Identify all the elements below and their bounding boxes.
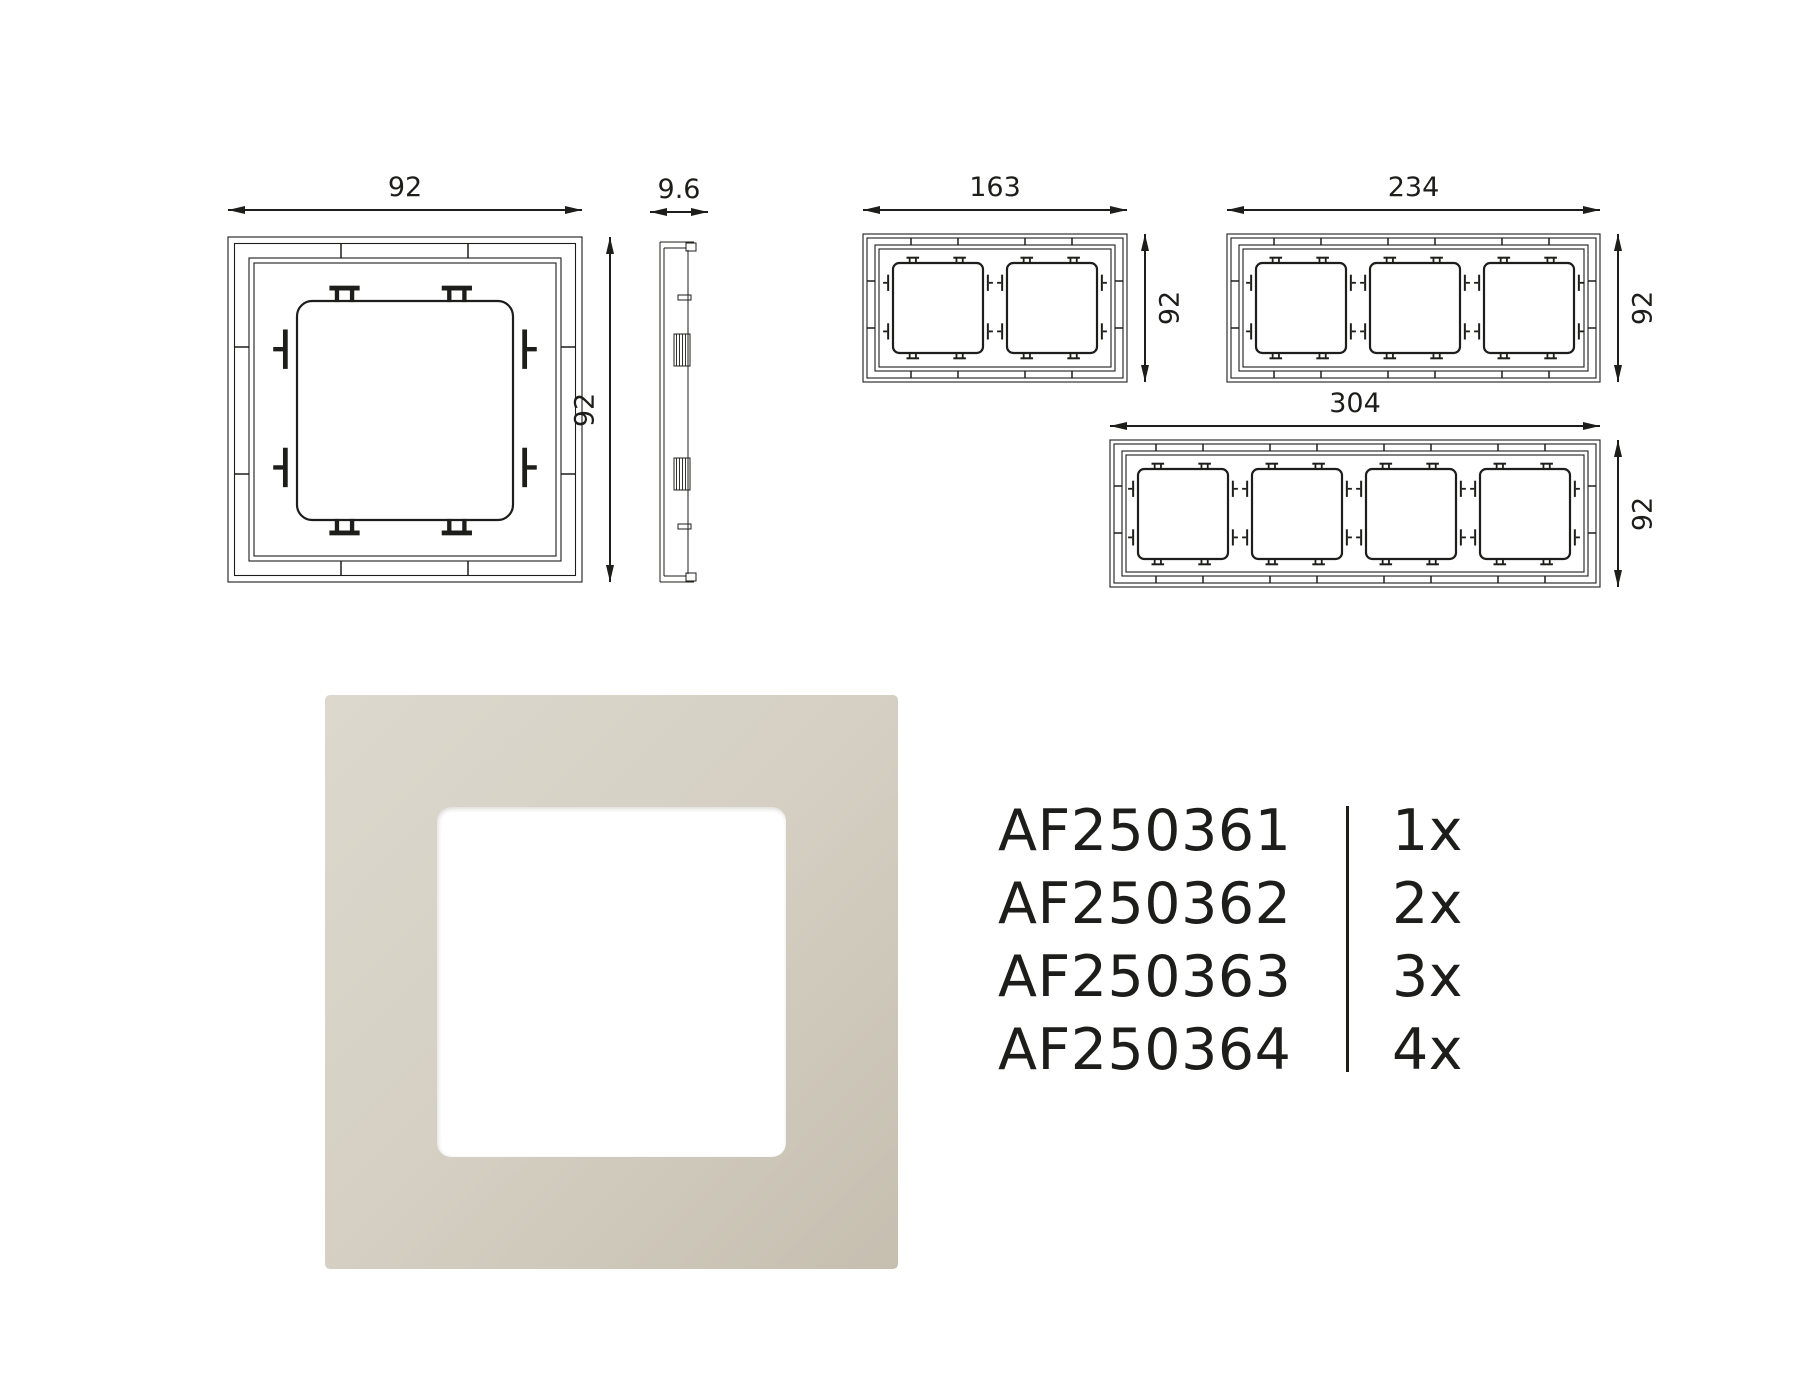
arrowhead-down-icon	[1141, 365, 1149, 382]
dim-line	[1227, 209, 1600, 210]
arrowhead-right-icon	[1583, 206, 1600, 214]
part-qty: 1x	[1392, 795, 1463, 868]
part-qty: 2x	[1392, 868, 1463, 941]
arrowhead-down-icon	[1614, 365, 1622, 382]
arrowhead-up-icon	[1614, 440, 1622, 457]
arrowhead-left-icon	[650, 208, 667, 216]
sku-column: AF250361 AF250362 AF250363 AF250364	[998, 795, 1291, 1087]
dim-label-height-3gang: 92	[1630, 291, 1657, 325]
dim-line	[228, 209, 582, 210]
frame-window-opening	[437, 807, 786, 1157]
arrowhead-right-icon	[565, 206, 582, 214]
arrowhead-left-icon	[1227, 206, 1244, 214]
part-list-divider	[1346, 806, 1349, 1072]
arrowhead-left-icon	[1110, 422, 1127, 430]
dim-line	[1617, 234, 1618, 382]
quantity-column: 1x 2x 3x 4x	[1392, 795, 1463, 1087]
dim-label-width-4gang: 304	[1329, 390, 1381, 417]
dim-line	[609, 237, 610, 582]
dim-label-width-1gang: 92	[388, 174, 422, 201]
front-view-1gang-drawing	[226, 235, 586, 589]
part-qty: 3x	[1392, 941, 1463, 1014]
dim-label-width-3gang: 234	[1388, 174, 1440, 201]
arrowhead-right-icon	[1110, 206, 1127, 214]
front-view-2gang-drawing	[861, 232, 1129, 384]
arrowhead-down-icon	[1614, 570, 1622, 587]
dim-line	[1110, 425, 1600, 426]
arrowhead-up-icon	[1614, 234, 1622, 251]
arrowhead-left-icon	[228, 206, 245, 214]
part-sku: AF250362	[998, 868, 1291, 941]
side-view-drawing	[654, 236, 702, 590]
dim-line	[1144, 234, 1145, 382]
arrowhead-down-icon	[606, 565, 614, 582]
dim-label-depth: 9.6	[658, 176, 701, 203]
arrowhead-right-icon	[691, 208, 708, 216]
part-sku: AF250361	[998, 795, 1291, 868]
arrowhead-up-icon	[606, 237, 614, 254]
dim-line	[863, 209, 1127, 210]
front-view-4gang-drawing	[1108, 438, 1604, 589]
front-view-3gang-drawing	[1225, 232, 1604, 384]
part-sku: AF250364	[998, 1014, 1291, 1087]
arrowhead-left-icon	[863, 206, 880, 214]
dim-line	[1617, 440, 1618, 587]
arrowhead-right-icon	[1583, 422, 1600, 430]
datasheet-page: 92 92	[0, 0, 1800, 1400]
dim-label-height-4gang: 92	[1630, 496, 1657, 530]
part-sku: AF250363	[998, 941, 1291, 1014]
dim-label-width-2gang: 163	[969, 174, 1021, 201]
part-qty: 4x	[1392, 1014, 1463, 1087]
product-photo-1gang-frame	[325, 695, 898, 1269]
dim-label-height-2gang: 92	[1157, 291, 1184, 325]
arrowhead-up-icon	[1141, 234, 1149, 251]
